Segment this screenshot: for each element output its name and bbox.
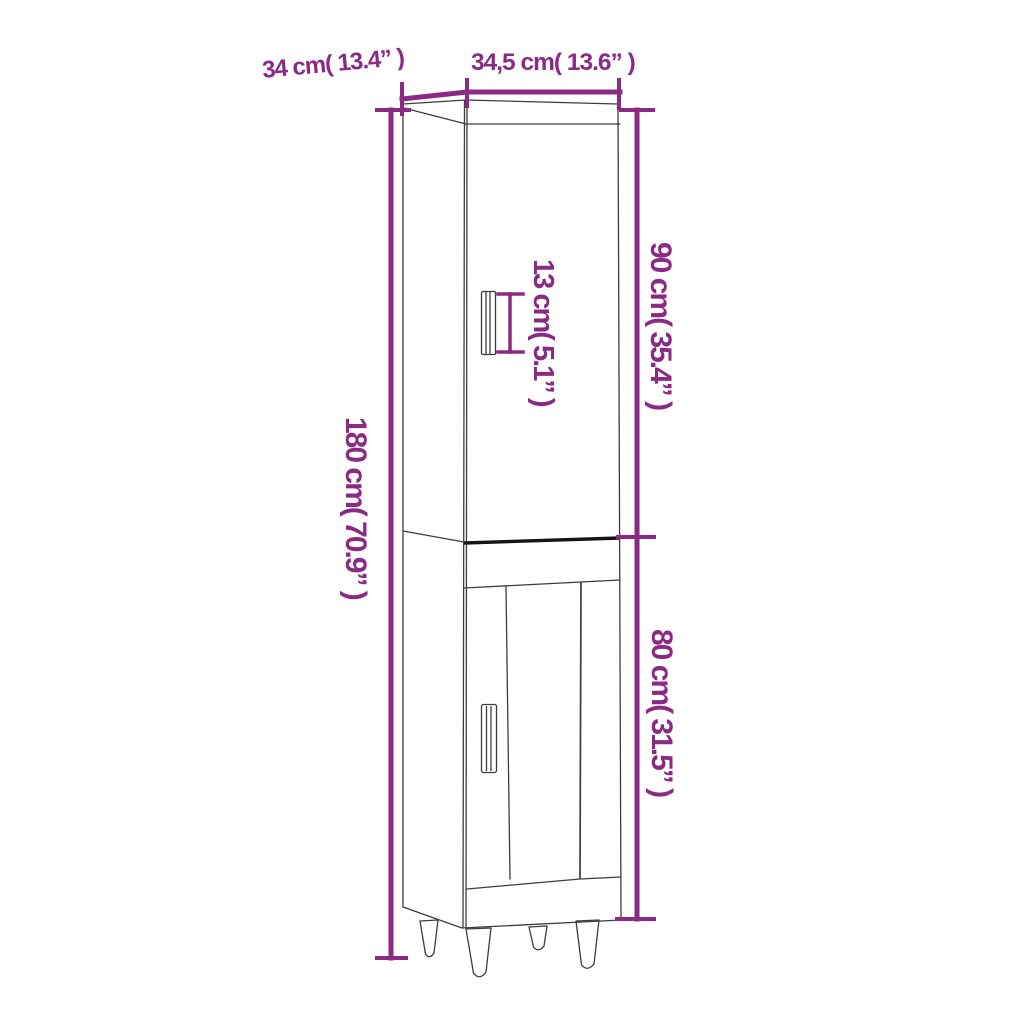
dimension-lines bbox=[377, 80, 654, 958]
lower-door-left-edge bbox=[506, 587, 510, 879]
cabinet-side-top-edge bbox=[404, 108, 466, 124]
cabinet-middle-divider bbox=[464, 538, 620, 543]
leg-back-left bbox=[420, 920, 438, 957]
dimension-diagram: 34 cm( 13.4” ) 34,5 cm( 13.6” ) 180 cm( … bbox=[0, 0, 1024, 1024]
cabinet-side-divider-edge bbox=[403, 531, 464, 542]
upper-door-handle bbox=[482, 292, 496, 355]
cabinet-top-back-edge bbox=[403, 100, 618, 104]
cabinet-front-left-corner-outer bbox=[463, 101, 465, 928]
cabinet-front-left-corner-inner bbox=[466, 101, 467, 929]
lower-door-top-edge bbox=[464, 580, 620, 588]
leg-back-middle bbox=[529, 926, 547, 950]
upper-handle-body bbox=[482, 292, 496, 355]
lower-height-dimension-label: 80 cm( 31.5” ) bbox=[645, 629, 678, 796]
dimension-line-depth bbox=[402, 92, 467, 99]
width-dimension-label: 34,5 cm( 13.6” ) bbox=[471, 49, 635, 77]
leg-front-right bbox=[576, 920, 599, 968]
cabinet-right-edge bbox=[618, 104, 621, 920]
leg-front-left bbox=[466, 928, 491, 977]
total-height-dimension-label: 180 cm( 70.9” ) bbox=[339, 417, 372, 599]
cabinet-line-art bbox=[0, 0, 1024, 1024]
lower-handle-body bbox=[482, 705, 497, 773]
handle-height-dimension-label: 13 cm( 5.1” ) bbox=[526, 259, 558, 405]
cabinet-outline bbox=[403, 100, 621, 929]
lower-door-handle bbox=[482, 705, 497, 773]
upper-height-dimension-label: 90 cm( 35.4” ) bbox=[644, 242, 677, 409]
cabinet-legs bbox=[420, 920, 599, 977]
cabinet-side-bottom-edge bbox=[403, 907, 462, 928]
lower-door-right-edge bbox=[580, 583, 581, 878]
lower-door-bottom-edge bbox=[467, 877, 621, 889]
